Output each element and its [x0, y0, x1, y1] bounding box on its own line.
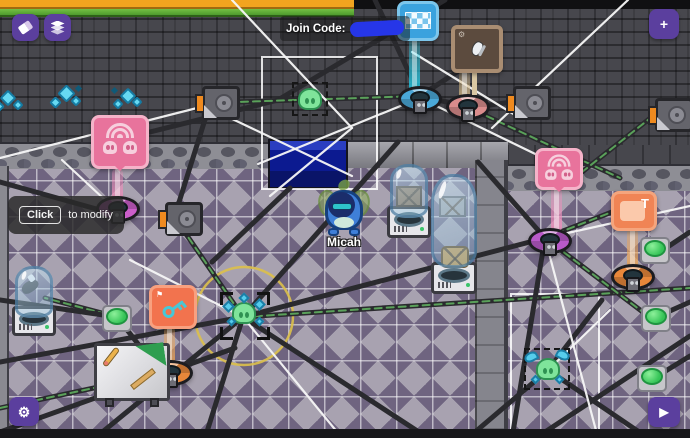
sentry-green[interactable]: [298, 88, 322, 110]
join-code-redaction: [350, 20, 405, 38]
craft-table[interactable]: [94, 343, 170, 401]
modify-tooltip: Click to modify: [8, 196, 124, 234]
eraser-icon: [18, 20, 34, 35]
skull-icon: [103, 141, 117, 154]
sign-wifi-skulls[interactable]: [535, 148, 583, 190]
sneaker-icon: [469, 40, 485, 58]
play-icon: ▶: [659, 406, 668, 418]
device-box-machine[interactable]: [165, 202, 203, 236]
glass-dome[interactable]: [15, 266, 53, 318]
skull-icon: [123, 141, 137, 154]
sign-wifi-skulls[interactable]: [91, 115, 149, 169]
player-character: Micah: [320, 184, 368, 250]
sign-post: [472, 71, 477, 95]
click-hint-text: to modify: [68, 209, 113, 221]
sign-text[interactable]: T: [611, 191, 657, 231]
add-button[interactable]: +: [649, 9, 679, 39]
gear-icon: ⚙: [458, 30, 465, 39]
flag-icon: ⚑: [156, 290, 163, 299]
key-icon: [160, 296, 194, 330]
device-box-machine[interactable]: [202, 86, 240, 120]
blue-crystal-cluster[interactable]: [0, 88, 32, 120]
goggles-icon: [332, 203, 352, 210]
game-canvas: Micah ⚙ T ⚑ + ⚙ ▶: [0, 0, 690, 438]
sign-key[interactable]: ⚑: [149, 285, 197, 329]
water-pool[interactable]: [268, 139, 348, 189]
map-edge-bottom: [0, 429, 690, 438]
wifi-icon: [548, 154, 571, 166]
green-button[interactable]: [641, 305, 671, 332]
glass-capsule-tall[interactable]: [431, 174, 477, 268]
click-hint-key: Click: [19, 206, 61, 224]
triangle-ruler-icon: [135, 342, 166, 370]
gear-icon: ⚙: [18, 405, 31, 419]
plus-icon: +: [660, 17, 668, 31]
device-saucer-orange-text[interactable]: [611, 262, 655, 296]
layers-icon: [50, 21, 66, 35]
letter-t-icon: T: [641, 196, 649, 211]
ruler-icon: [130, 368, 156, 390]
green-button[interactable]: [102, 305, 132, 332]
eraser-tool-button[interactable]: [12, 14, 39, 41]
join-code-label: Join Code:: [286, 23, 345, 35]
device-saucer-rose[interactable]: [446, 92, 490, 126]
green-button[interactable]: [640, 237, 670, 264]
sign-sneaker[interactable]: ⚙: [451, 25, 503, 73]
pencil-icon: [102, 346, 120, 367]
device-saucer-blue[interactable]: [398, 84, 442, 118]
settings-button[interactable]: ⚙: [9, 397, 39, 426]
stone-pillar: [475, 160, 508, 430]
selection-brackets: [220, 292, 270, 340]
skull-icon: [561, 169, 572, 180]
blue-crystal-cluster[interactable]: [48, 84, 88, 116]
layers-tool-button[interactable]: [44, 14, 71, 41]
player-nametag: Micah: [327, 235, 361, 249]
green-button[interactable]: [637, 365, 667, 392]
device-saucer-purple[interactable]: [528, 226, 572, 260]
blue-crystal-cluster[interactable]: [112, 86, 152, 118]
play-button[interactable]: ▶: [648, 397, 680, 427]
device-box-machine[interactable]: [513, 86, 551, 120]
skull-icon: [545, 169, 556, 180]
sentry-winged[interactable]: [536, 358, 560, 380]
glass-dome[interactable]: [390, 164, 428, 218]
wifi-icon: [106, 123, 134, 138]
device-box-machine[interactable]: [655, 98, 690, 132]
terrain-top-orange: [0, 0, 354, 9]
join-code-bar: Join Code:: [280, 16, 410, 41]
